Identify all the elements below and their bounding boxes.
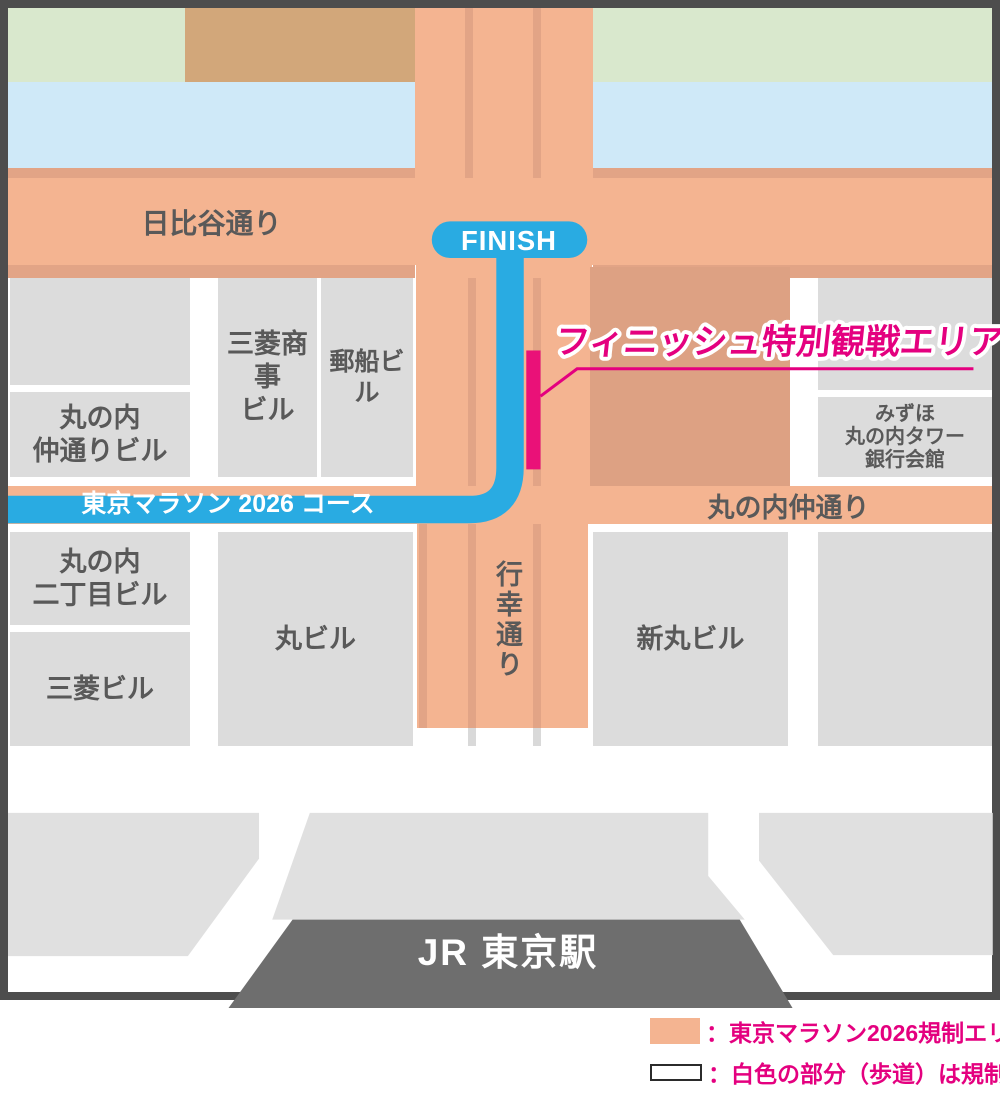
building-mitsubishi: 三菱ビル xyxy=(10,632,190,746)
building-label-line: 郵船ビル xyxy=(321,347,413,408)
lane-line-stub xyxy=(468,728,476,746)
road-gyoko-north xyxy=(415,8,593,178)
road-gyoko-middle xyxy=(416,265,592,486)
building-label-line: 丸の内 xyxy=(60,546,141,579)
building-shinmaru: 新丸ビル xyxy=(593,532,788,746)
park-tan-area xyxy=(185,8,415,82)
station-plaza-left xyxy=(8,813,259,956)
building-maru: 丸ビル xyxy=(218,532,413,746)
building-label-line: 丸の内 xyxy=(60,402,141,435)
lane-line xyxy=(419,524,427,728)
building-label-line: 銀行会館 xyxy=(865,449,945,472)
legend-restricted-label: ：東京マラソン2026規制エリア xyxy=(706,1014,1000,1048)
building-label-line: 二丁目ビル xyxy=(33,579,168,612)
building-label-line: 丸の内タワー xyxy=(845,426,965,449)
building-marunouchi-nichome: 丸の内 二丁目ビル xyxy=(10,532,190,625)
building-label-line: 仲通りビル xyxy=(33,435,168,468)
building-yusen: 郵船ビル xyxy=(321,278,413,477)
road-label-nakadori: 丸の内仲通り xyxy=(585,486,992,524)
lane-line xyxy=(468,524,476,728)
road-edge-shadow-right xyxy=(593,168,992,178)
gyoko-plaza-dark-area xyxy=(590,267,790,486)
course-band-label: 東京マラソン 2026 コース xyxy=(8,487,448,517)
station-label: JR 東京駅 xyxy=(288,905,728,992)
building-label-line: 丸ビル xyxy=(275,623,356,656)
building-marunouchi-nakadori: 丸の内 仲通りビル xyxy=(10,392,190,477)
block-edge-shadow-left xyxy=(8,265,415,278)
lane-line xyxy=(468,278,476,486)
legend-sidewalk-label: ：白色の部分（歩道）は規制外 xyxy=(708,1055,1000,1089)
marathon-finish-map-page: 丸の内 仲通りビル 三菱商事 ビル 郵船ビル みずほ 丸の内タワー 銀行会館 丸… xyxy=(0,0,1000,1095)
road-label-hibiya: 日比谷通り xyxy=(8,178,415,265)
legend: ：東京マラソン2026規制エリア ：白色の部分（歩道）は規制外 xyxy=(0,1000,1000,1095)
lane-line-stub xyxy=(533,728,541,746)
building-label-line: 三菱ビル xyxy=(46,673,154,706)
legend-row-sidewalk: ：白色の部分（歩道）は規制外 xyxy=(650,1055,1000,1089)
building-label-line: ビル xyxy=(241,394,295,427)
park-area-topleft xyxy=(8,8,185,82)
station-plaza-middle xyxy=(272,813,745,920)
building-label-line: 三菱商事 xyxy=(218,328,317,394)
lane-line xyxy=(533,8,541,178)
sidewalk-swatch xyxy=(650,1064,702,1081)
building-mizuho-tower: みずほ 丸の内タワー 銀行会館 xyxy=(818,397,992,477)
building-unlabeled-naka-top xyxy=(10,278,190,385)
legend-row-restricted: ：東京マラソン2026規制エリア xyxy=(650,1014,1000,1048)
restricted-area-swatch xyxy=(650,1018,700,1044)
building-mitsubishi-shoji: 三菱商事 ビル xyxy=(218,278,317,477)
building-label-line: みずほ xyxy=(875,403,935,426)
map-canvas: 丸の内 仲通りビル 三菱商事 ビル 郵船ビル みずほ 丸の内タワー 銀行会館 丸… xyxy=(0,0,1000,1000)
building-label-line: 新丸ビル xyxy=(637,623,745,656)
moat-water-right xyxy=(593,82,992,168)
lane-line xyxy=(533,524,541,728)
lane-line xyxy=(465,8,473,178)
road-label-gyoko: 行幸通り xyxy=(488,560,527,690)
lane-line xyxy=(533,278,541,486)
moat-water-left xyxy=(8,82,415,168)
park-area-topright xyxy=(593,8,992,82)
station-plaza-right xyxy=(759,813,993,955)
road-edge-shadow-left xyxy=(8,168,415,178)
building-mizuho-top xyxy=(818,278,992,390)
building-unlabeled-right xyxy=(818,532,992,746)
